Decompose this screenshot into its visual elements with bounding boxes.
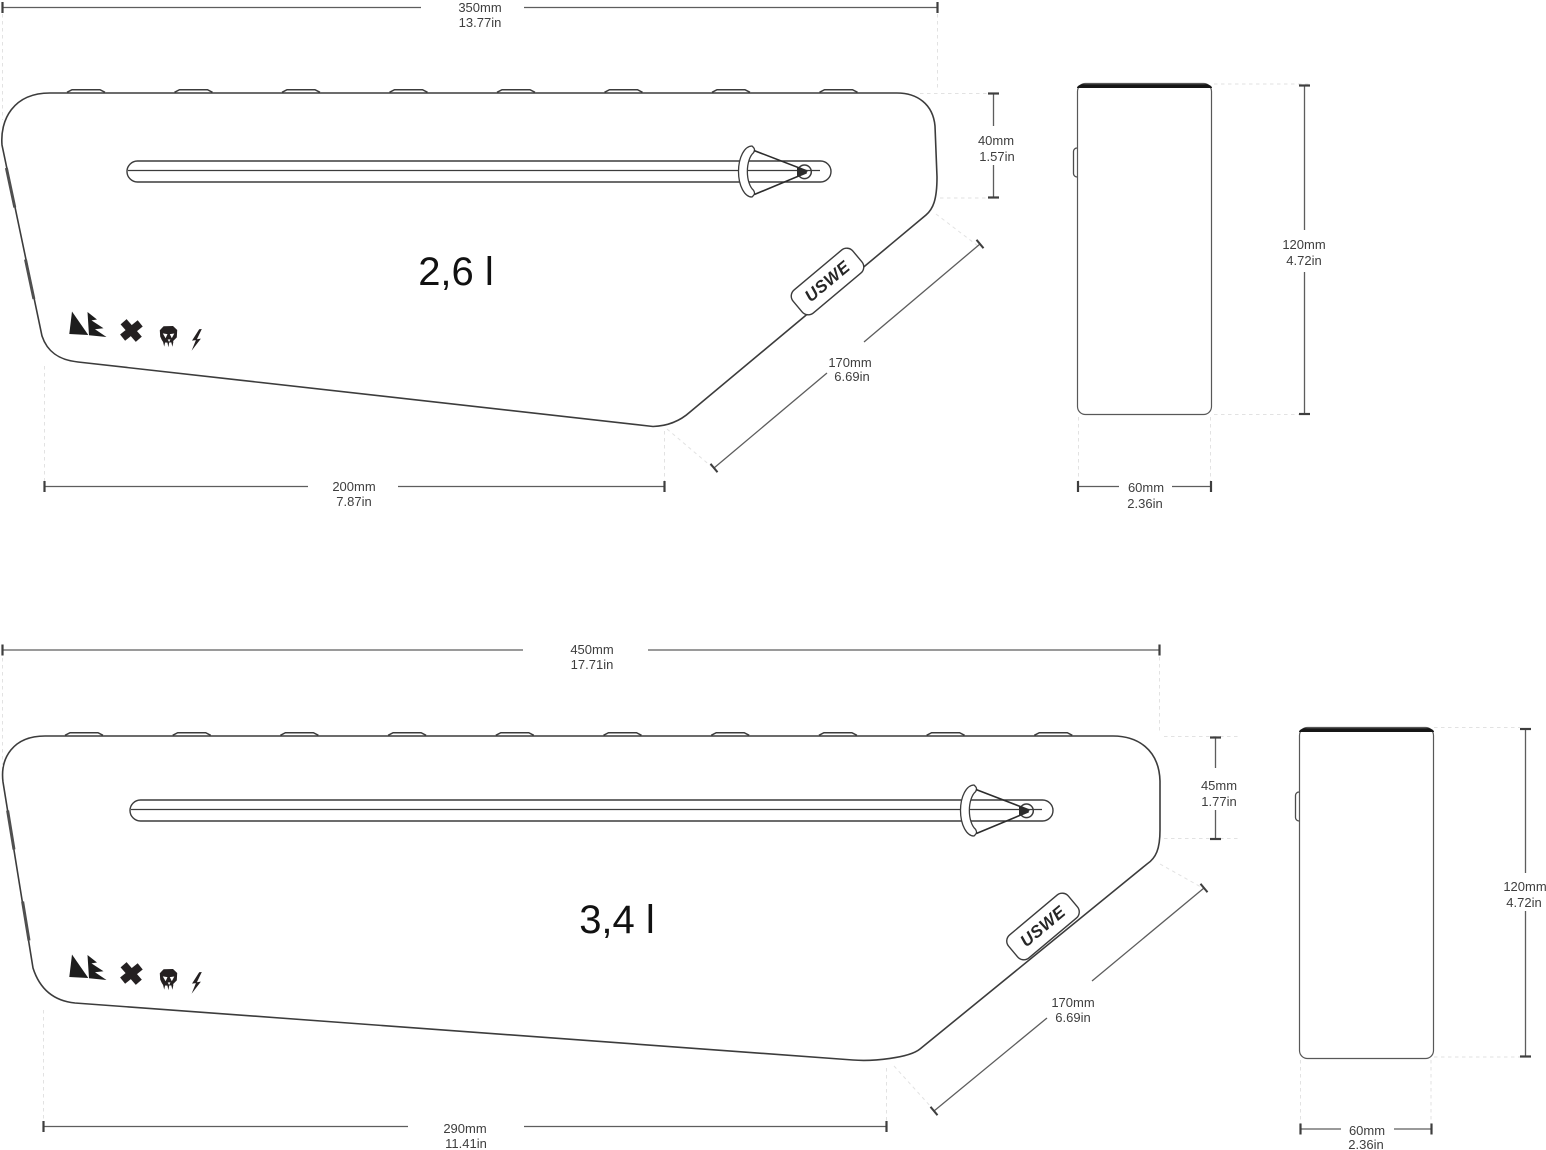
svg-text:290mm: 290mm <box>443 1121 486 1136</box>
svg-text:4.72in: 4.72in <box>1506 895 1541 910</box>
svg-text:2.36in: 2.36in <box>1348 1137 1383 1150</box>
svg-text:1.57in: 1.57in <box>979 149 1014 164</box>
svg-text:40mm: 40mm <box>978 133 1014 148</box>
svg-text:170mm: 170mm <box>828 355 871 370</box>
svg-text:200mm: 200mm <box>332 479 375 494</box>
svg-text:6.69in: 6.69in <box>1055 1010 1090 1025</box>
svg-text:60mm: 60mm <box>1128 480 1164 495</box>
svg-text:6.69in: 6.69in <box>834 369 869 384</box>
svg-text:170mm: 170mm <box>1051 995 1094 1010</box>
svg-text:350mm: 350mm <box>458 0 501 15</box>
svg-text:120mm: 120mm <box>1282 237 1325 252</box>
svg-text:1.77in: 1.77in <box>1201 794 1236 809</box>
svg-text:11.41in: 11.41in <box>445 1136 487 1150</box>
svg-text:4.72in: 4.72in <box>1286 253 1321 268</box>
svg-text:13.77in: 13.77in <box>459 15 502 30</box>
svg-text:2.36in: 2.36in <box>1127 496 1162 511</box>
svg-text:17.71in: 17.71in <box>571 657 614 672</box>
svg-text:45mm: 45mm <box>1201 778 1237 793</box>
svg-text:3,4 l: 3,4 l <box>579 898 655 942</box>
svg-text:7.87in: 7.87in <box>336 494 371 509</box>
svg-text:120mm: 120mm <box>1503 879 1546 894</box>
svg-text:2,6 l: 2,6 l <box>418 250 494 294</box>
svg-text:450mm: 450mm <box>570 642 613 657</box>
svg-text:60mm: 60mm <box>1349 1123 1385 1138</box>
